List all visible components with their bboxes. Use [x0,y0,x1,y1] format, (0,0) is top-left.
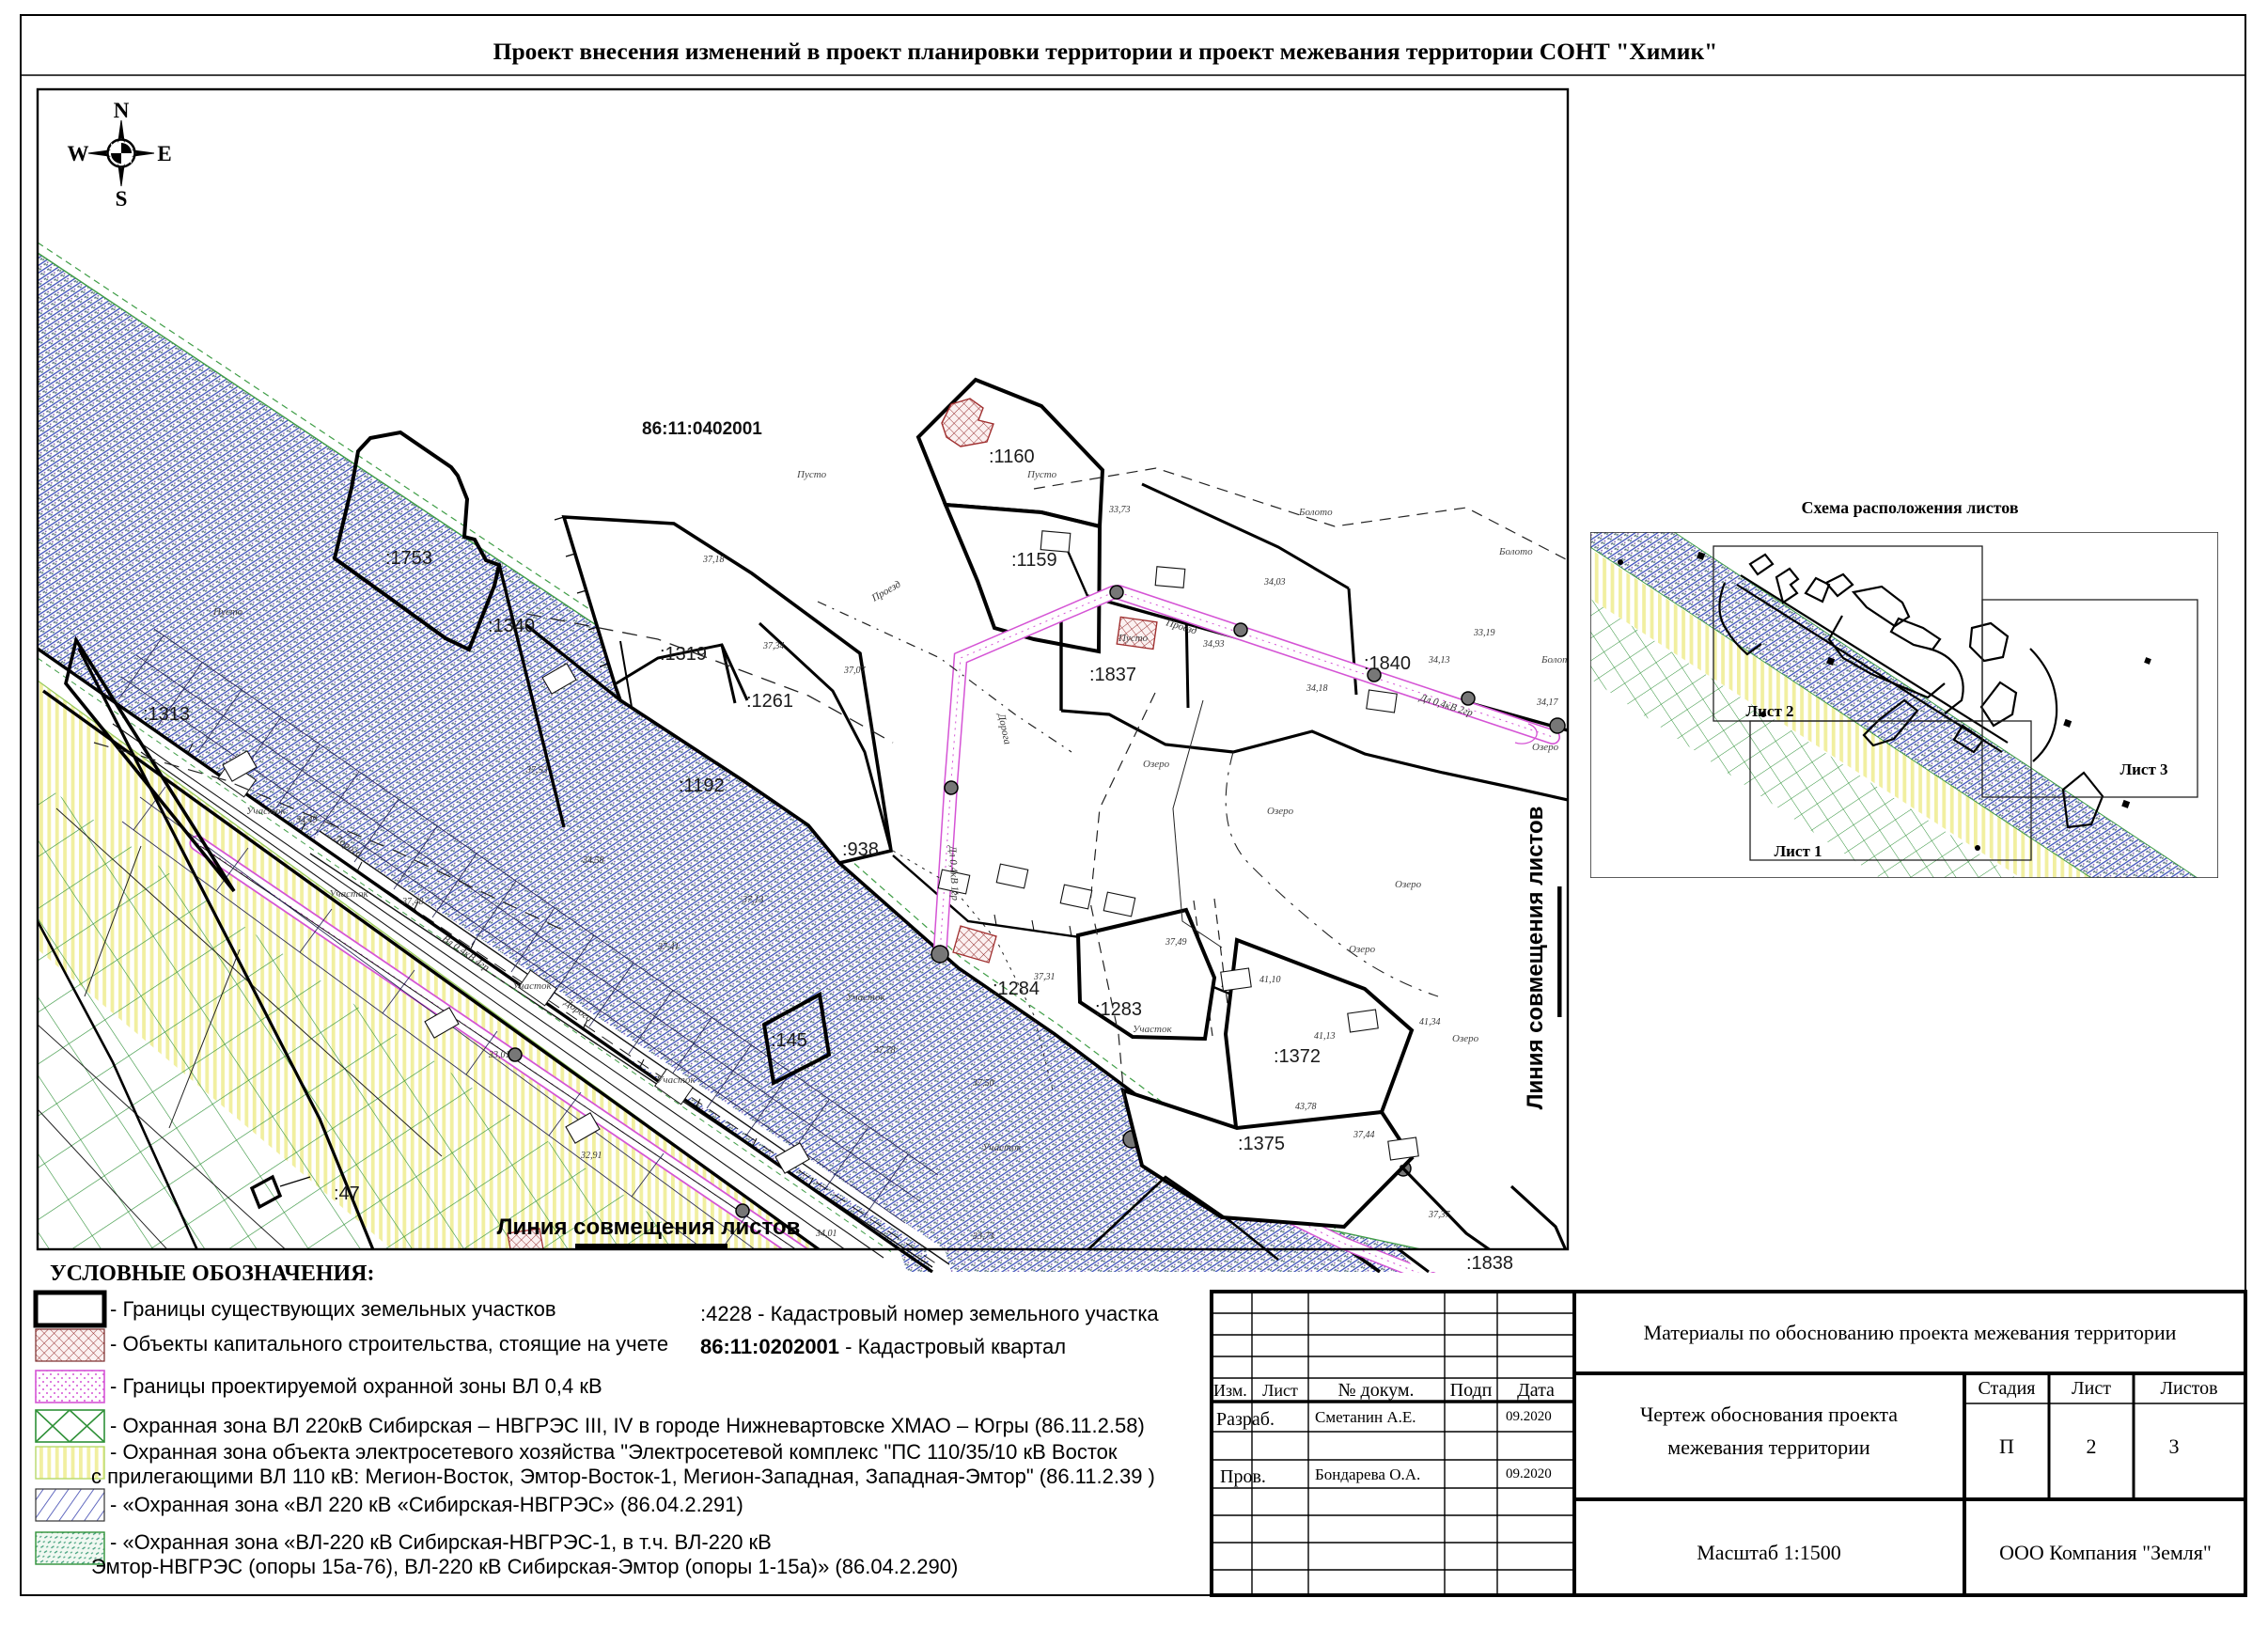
svg-text:Лист 3: Лист 3 [2119,760,2167,778]
svg-text:Озеро: Озеро [1395,879,1422,890]
svg-text:37,78: 37,78 [873,1045,896,1056]
svg-text:Изм.: Изм. [1213,1381,1247,1400]
svg-text:Эмтор-НВГРЭС (опоры 15а-76), В: Эмтор-НВГРЭС (опоры 15а-76), ВЛ-220 кВ С… [91,1555,958,1578]
svg-text:Пусто: Пусто [212,606,243,618]
svg-text::1283: :1283 [1095,999,1142,1020]
svg-text:- Границы существующих земельн: - Границы существующих земельных участко… [110,1297,556,1321]
svg-text:Подп: Подп [1450,1380,1493,1401]
svg-text:Озеро: Озеро [1349,944,1376,955]
svg-text:37,50: 37,50 [972,1078,994,1089]
svg-text:Разраб.: Разраб. [1216,1409,1275,1430]
svg-text:34,18: 34,18 [1306,683,1328,694]
svg-text:- Объекты капитального строите: - Объекты капитального строительства, ст… [110,1332,668,1356]
svg-text:Участок: Участок [1133,1024,1172,1035]
svg-text:Пусто: Пусто [1026,469,1057,480]
svg-text:П: П [1999,1434,2014,1458]
svg-text:37,41: 37,41 [657,942,680,952]
svg-text::1375: :1375 [1238,1134,1285,1154]
svg-text:34,01: 34,01 [815,1229,837,1239]
svg-text::1313: :1313 [143,704,190,725]
svg-text::47: :47 [334,1183,360,1204]
svg-text:34,58: 34,58 [582,855,604,866]
svg-text:09.2020: 09.2020 [1506,1409,1552,1424]
svg-text:33,01: 33,01 [488,1050,510,1060]
svg-text::1160: :1160 [989,447,1035,467]
svg-text:- «Охранная зона «ВЛ-220 кВ Си: - «Охранная зона «ВЛ-220 кВ Сибирская-НВ… [110,1530,772,1554]
svg-text:32,91: 32,91 [580,1151,602,1161]
svg-text:Материалы по обоснованию проек: Материалы по обоснованию проекта межеван… [1644,1321,2177,1344]
svg-text:33,19: 33,19 [1473,628,1495,638]
svg-text:41,34: 41,34 [1419,1017,1441,1027]
svg-text:37,37: 37,37 [1428,1210,1451,1220]
svg-text:2: 2 [2087,1434,2097,1458]
svg-text:Бондарева О.А.: Бондарева О.А. [1315,1465,1420,1483]
svg-text:41,10: 41,10 [1259,975,1281,985]
svg-text::1284: :1284 [993,979,1040,999]
svg-text:Участок: Участок [846,992,885,1003]
svg-text:Лист 1: Лист 1 [1774,842,1822,860]
svg-text::1838: :1838 [1466,1253,1513,1274]
svg-text::1753: :1753 [385,548,432,569]
svg-text::1837: :1837 [1089,665,1136,685]
svg-text:Лист 2: Лист 2 [1745,702,1793,720]
svg-text:Сметанин А.Е.: Сметанин А.Е. [1315,1408,1416,1426]
svg-text:37,48: 37,48 [401,897,424,907]
svg-text:37,31: 37,31 [1033,972,1056,982]
svg-text:Озеро: Озеро [1452,1033,1479,1044]
svg-text:Озеро: Озеро [1267,806,1294,817]
svg-text:Чертеж обоснования проекта: Чертеж обоснования проекта [1640,1403,1898,1426]
svg-text:Участок: Участок [329,888,368,900]
svg-text:3: 3 [2169,1434,2180,1458]
svg-text:34,03: 34,03 [1263,577,1286,588]
svg-text:41,13: 41,13 [1314,1031,1336,1042]
svg-text:37,49: 37,49 [1165,937,1187,948]
svg-text:Пусто: Пусто [796,469,827,480]
svg-text:Стадия: Стадия [1978,1378,2035,1399]
svg-text:Участок: Участок [246,806,286,817]
svg-text:34,93: 34,93 [1202,639,1225,650]
svg-text:N: N [114,99,130,122]
svg-text::1159: :1159 [1011,550,1057,571]
svg-text:- Границы проектируемой охранн: - Границы проектируемой охранной зоны ВЛ… [110,1374,602,1398]
svg-text:Болото: Болото [1498,546,1533,557]
svg-text:Линия совмещения листов: Линия совмещения листов [497,1215,801,1240]
svg-text:с прилегающими ВЛ 110 кВ: Меги: с прилегающими ВЛ 110 кВ: Мегион-Восток,… [91,1465,1155,1488]
svg-text:Дата: Дата [1517,1380,1555,1401]
svg-text::938: :938 [842,839,879,860]
svg-text:09.2020: 09.2020 [1506,1466,1552,1481]
svg-text:37,18: 37,18 [702,555,725,565]
svg-text:- Охранная зона ВЛ 220кВ Сибир: - Охранная зона ВЛ 220кВ Сибирская – НВГ… [110,1414,1145,1437]
svg-text::1340: :1340 [488,616,535,636]
svg-text:Масштаб 1:1500: Масштаб 1:1500 [1697,1541,1840,1564]
svg-text:37,44: 37,44 [1353,1130,1375,1140]
svg-text:Лист: Лист [1262,1381,1298,1400]
svg-text:Озеро: Озеро [1532,742,1559,753]
svg-text:86:11:0402001: 86:11:0402001 [642,419,762,439]
svg-text:Пусто: Пусто [1118,633,1149,644]
svg-text:86:11:0202001 - Кадастровый к: 86:11:0202001 - Кадастровый квартал [700,1335,1066,1358]
svg-text:33,73: 33,73 [1108,505,1131,515]
svg-text:Линия совмещения листов: Линия совмещения листов [1523,807,1548,1110]
svg-text:- «Охранная зона «ВЛ 220 кВ «С: - «Охранная зона «ВЛ 220 кВ «Сибирская-Н… [110,1493,743,1516]
svg-text:37,13: 37,13 [742,895,764,905]
svg-text:37,53: 37,53 [525,765,548,776]
svg-text::145: :145 [771,1030,807,1051]
svg-text:- Охранная зона объекта электр: - Охранная зона объекта электросетевого … [110,1440,1118,1464]
svg-text:УСЛОВНЫЕ ОБОЗНАЧЕНИЯ:: УСЛОВНЫЕ ОБОЗНАЧЕНИЯ: [50,1262,375,1286]
svg-text:33,73: 33,73 [972,1231,994,1242]
svg-text:Болото: Болото [1298,507,1333,518]
svg-text:межевания территории: межевания территории [1667,1435,1870,1459]
svg-text:Пров.: Пров. [1220,1466,1266,1487]
svg-text:Участок: Участок [512,980,552,992]
svg-text:Участок: Участок [982,1142,1022,1153]
svg-text:S: S [116,187,128,211]
svg-text:Участок: Участок [656,1074,696,1086]
svg-text:37,07: 37,07 [843,666,867,676]
svg-text:34,17: 34,17 [1536,697,1559,708]
svg-text:Озеро: Озеро [1143,759,1170,770]
svg-text:W: W [68,142,89,165]
svg-text::4228 - Кадастровый номер зе: :4228 - Кадастровый номер земельного уча… [700,1302,1159,1325]
svg-text::1840: :1840 [1364,653,1411,674]
svg-text:Лист: Лист [2072,1378,2111,1399]
svg-text::1319: :1319 [660,644,707,665]
svg-text::1192: :1192 [679,776,725,796]
svg-text:37,34: 37,34 [762,641,785,651]
svg-text:№ докум.: № докум. [1337,1380,1414,1401]
svg-text:Листов: Листов [2160,1378,2217,1399]
svg-text:34,49: 34,49 [295,815,318,825]
svg-text::1261: :1261 [746,691,793,712]
svg-text:Схема расположения листов: Схема расположения листов [1801,498,2018,517]
svg-text:34,13: 34,13 [1428,655,1450,666]
svg-text:Проект внесения изменений в пр: Проект внесения изменений в проект плани… [493,38,1718,65]
svg-text:43,78: 43,78 [1295,1102,1317,1112]
svg-text:ООО Компания "Земля": ООО Компания "Земля" [1999,1541,2212,1564]
svg-text::1372: :1372 [1274,1046,1321,1067]
svg-text:E: E [157,142,171,165]
